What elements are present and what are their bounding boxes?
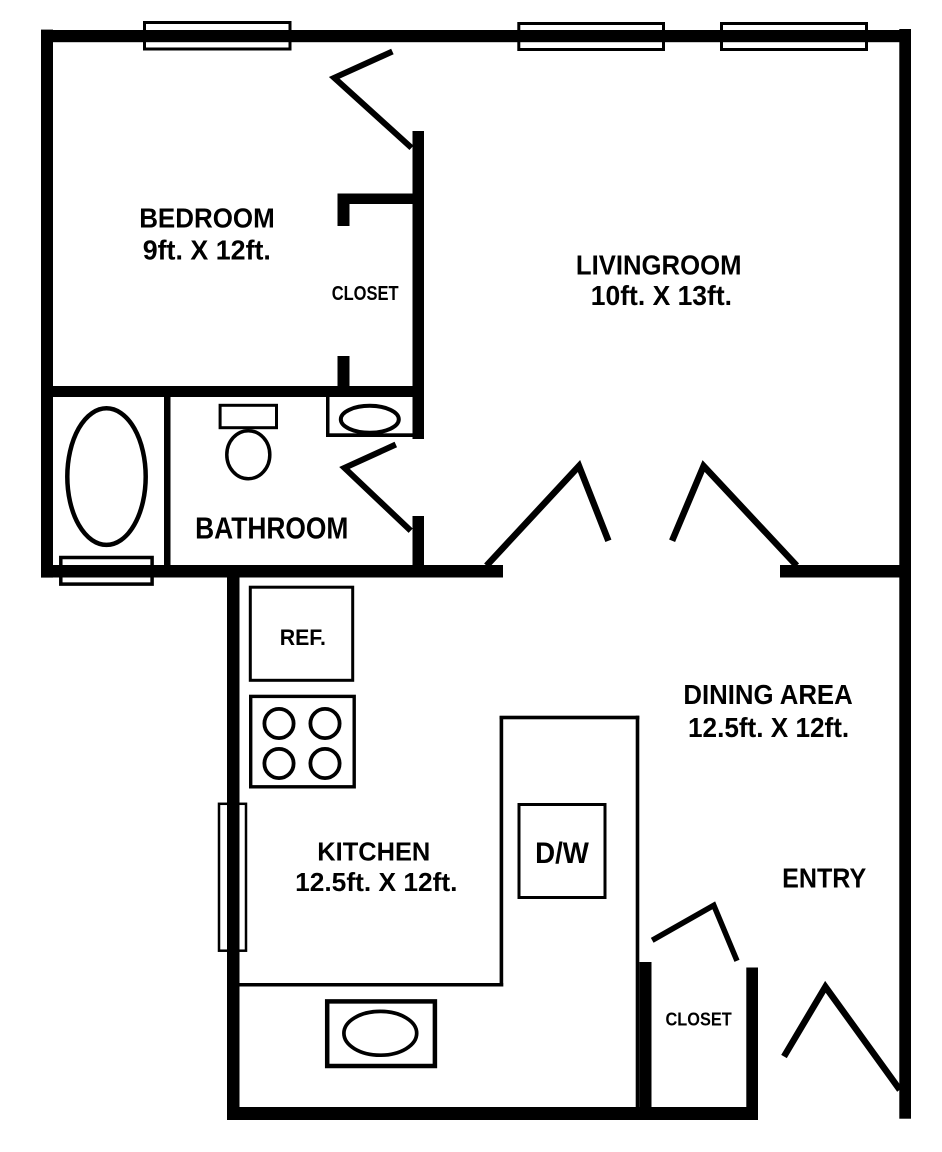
svg-text:12.5ft. X 12ft.: 12.5ft. X 12ft. <box>295 867 457 897</box>
svg-text:D/W: D/W <box>535 837 589 870</box>
svg-text:12.5ft. X 12ft.: 12.5ft. X 12ft. <box>688 712 849 743</box>
svg-text:ENTRY: ENTRY <box>782 863 866 894</box>
svg-text:REF.: REF. <box>280 625 326 650</box>
svg-text:BATHROOM: BATHROOM <box>195 510 348 545</box>
svg-text:LIVINGROOM: LIVINGROOM <box>576 249 742 280</box>
svg-text:DINING AREA: DINING AREA <box>683 679 852 710</box>
svg-text:CLOSET: CLOSET <box>666 1009 733 1030</box>
svg-text:9ft. X 12ft.: 9ft. X 12ft. <box>143 235 271 266</box>
svg-text:CLOSET: CLOSET <box>332 283 399 305</box>
svg-text:KITCHEN: KITCHEN <box>317 836 430 866</box>
svg-text:10ft. X 13ft.: 10ft. X 13ft. <box>591 280 732 311</box>
svg-text:BEDROOM: BEDROOM <box>139 203 275 234</box>
